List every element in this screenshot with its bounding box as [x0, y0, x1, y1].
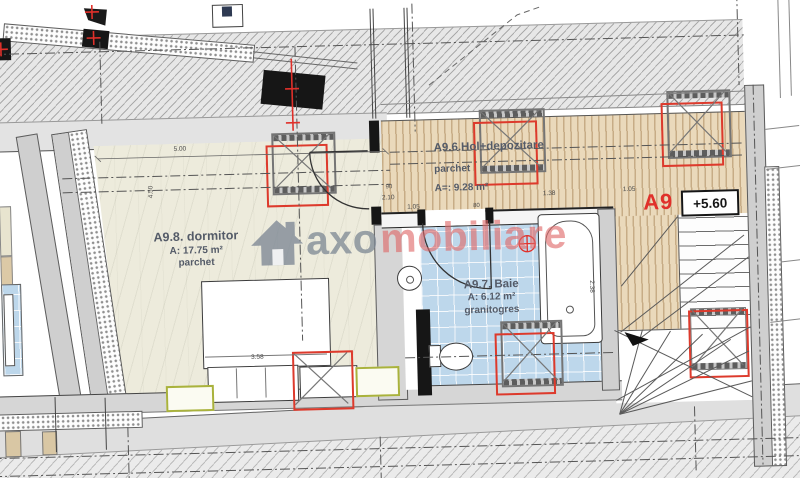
apartment-label: A9 [643, 189, 674, 216]
dim-tub-length: 2.38 [588, 280, 595, 293]
dim-hol-mid: 1.38 [543, 190, 556, 197]
watermark-text-red: mobiliare [380, 213, 568, 259]
level-badge: +5.60 [681, 189, 740, 217]
floor-plan-drawing: A9.8. dormitor A: 17.75 m² parchet A9.6.… [0, 0, 800, 478]
dim-hol-right: 1.05 [623, 186, 636, 193]
label-hol: A9.6.Hol+depozitare parchet A=: 9.28 m² [433, 137, 594, 196]
dim-bath-door: 80 [473, 203, 480, 209]
watermark-house-icon [249, 215, 304, 268]
watermark: axo mobiliare [249, 208, 567, 268]
dim-door-width: 90 [386, 184, 393, 190]
dim-dorm-bottom: 3.58 [251, 354, 264, 361]
floor-plan-screenshot: A9.8. dormitor A: 17.75 m² parchet A9.6.… [0, 0, 800, 478]
watermark-text-gray: axo [305, 218, 378, 261]
roof-ridge-block [84, 8, 107, 27]
hol-finish: parchet [434, 160, 594, 177]
stair-direction-arrow [625, 332, 649, 347]
dim-dorm-width: 5.00 [173, 146, 186, 153]
dim-hol-left: 1.05 [407, 203, 420, 210]
dim-door-height: 2.10 [382, 194, 395, 201]
dim-dorm-depth: 4.50 [147, 186, 154, 199]
hol-name: A9.6.Hol+depozitare [433, 137, 593, 156]
label-baie: A9.7. Baie A: 6.12 m² granitogres [421, 276, 562, 319]
